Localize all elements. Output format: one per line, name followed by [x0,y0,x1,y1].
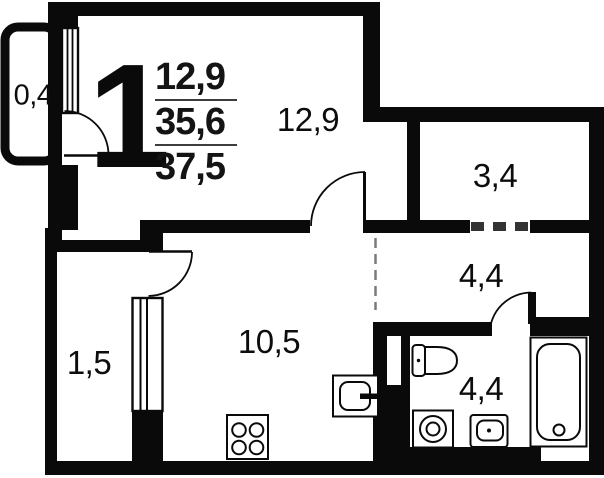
washing-machine-icon [413,411,453,448]
living-room-area-label: 12,9 [277,101,339,139]
toilet-icon [413,345,458,376]
apartment-area-value: 35,6 [155,101,237,146]
area-legend: 12,9 35,6 37,5 [155,56,237,189]
living-area-value: 12,9 [155,56,237,101]
kitchen-sink-icon [333,376,378,417]
floor-plan: 1 12,9 35,6 37,5 0,4 12,9 3,4 4,4 4,4 10… [0,0,604,478]
closet-area-label: 1,5 [67,344,111,382]
bathroom-area-label: 4,4 [459,370,503,408]
window-icon [62,28,78,113]
bathroom-door-icon [490,292,537,334]
sink-icon [471,415,508,447]
total-area-value: 37,5 [155,146,237,189]
balcony-area-label: 0,4 [14,80,53,113]
living-room-door-icon [311,172,365,226]
bathtub-icon [531,338,587,447]
stove-icon [227,415,268,459]
storage-room-area-label: 3,4 [473,157,517,195]
closet-door-icon [149,252,193,297]
kitchen-area-label: 10,5 [238,323,300,361]
hallway-area-label: 4,4 [459,257,503,295]
wardrobe-icon [133,298,163,411]
